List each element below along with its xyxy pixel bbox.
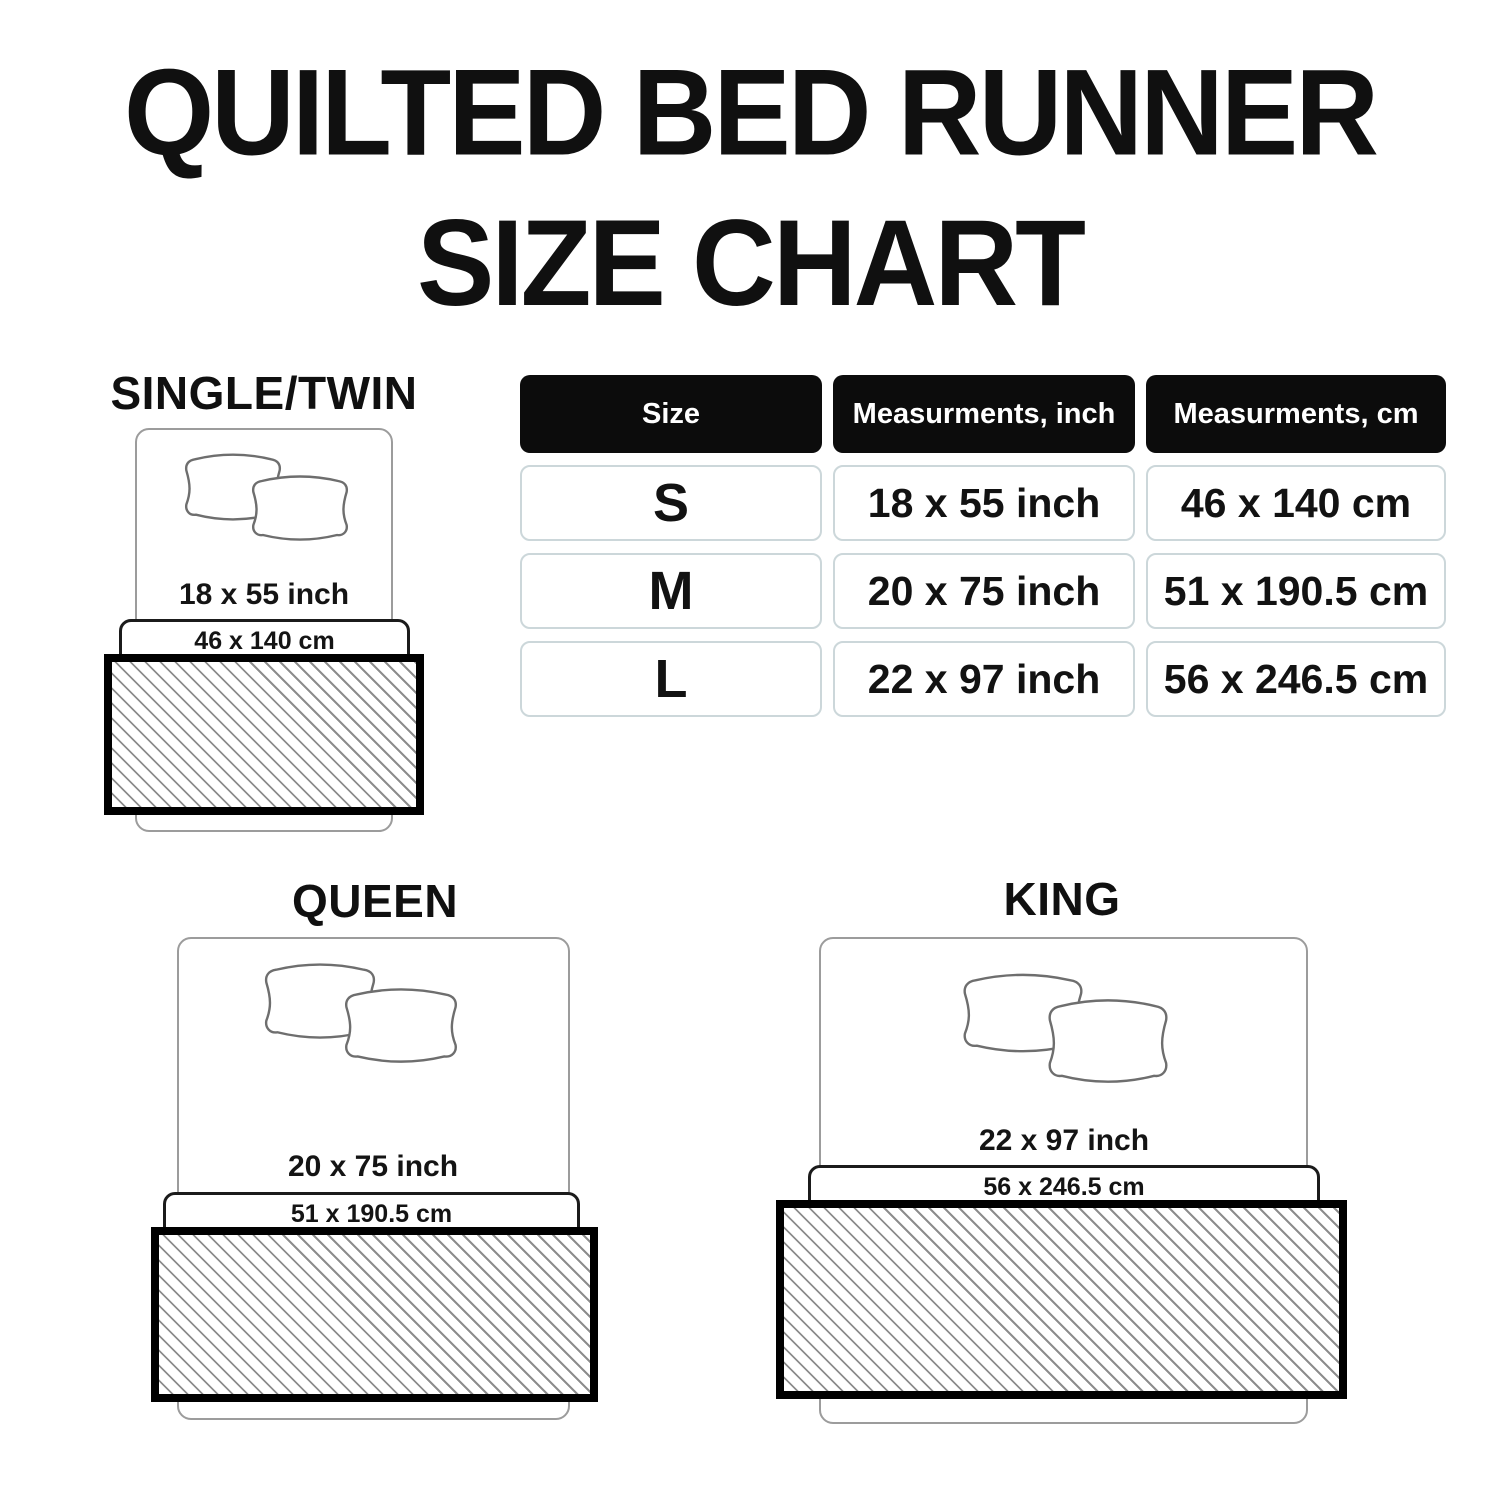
bed-label-queen: QUEEN xyxy=(175,874,575,928)
table-cell-inch-s: 18 x 55 inch xyxy=(833,465,1135,541)
pillow-icon xyxy=(339,982,463,1069)
quilted-runner-swatch xyxy=(151,1227,598,1402)
size-chart-infographic: QUILTED BED RUNNER SIZE CHART Size Measu… xyxy=(0,0,1500,1500)
table-header-inch: Measurments, inch xyxy=(833,375,1135,453)
size-table: Size Measurments, inch Measurments, cm S… xyxy=(520,375,1446,717)
bed-label-king: KING xyxy=(862,872,1262,926)
runner-size-cm-label: 46 x 140 cm xyxy=(122,622,407,656)
bed-label-single-twin: SINGLE/TWIN xyxy=(84,366,444,420)
pillow-icon xyxy=(1042,992,1174,1090)
table-header-size: Size xyxy=(520,375,822,453)
table-cell-cm-s: 46 x 140 cm xyxy=(1146,465,1446,541)
table-cell-size-l: L xyxy=(520,641,822,717)
table-cell-size-s: S xyxy=(520,465,822,541)
page-title: QUILTED BED RUNNER SIZE CHART xyxy=(0,38,1500,338)
runner-size-inch-label: 20 x 75 inch xyxy=(173,1150,573,1184)
title-line-1: QUILTED BED RUNNER xyxy=(0,38,1500,188)
table-cell-inch-m: 20 x 75 inch xyxy=(833,553,1135,629)
quilted-runner-swatch xyxy=(104,654,424,815)
pillow-icon xyxy=(247,470,353,546)
table-cell-size-m: M xyxy=(520,553,822,629)
runner-size-inch-label: 22 x 97 inch xyxy=(864,1124,1264,1158)
table-cell-cm-l: 56 x 246.5 cm xyxy=(1146,641,1446,717)
title-line-2: SIZE CHART xyxy=(0,188,1500,338)
runner-size-cm-label: 51 x 190.5 cm xyxy=(166,1195,577,1229)
runner-size-cm-label: 56 x 246.5 cm xyxy=(811,1168,1317,1202)
table-cell-inch-l: 22 x 97 inch xyxy=(833,641,1135,717)
table-cell-cm-m: 51 x 190.5 cm xyxy=(1146,553,1446,629)
quilted-runner-swatch xyxy=(776,1200,1347,1399)
runner-size-inch-label: 18 x 55 inch xyxy=(114,578,414,612)
table-header-cm: Measurments, cm xyxy=(1146,375,1446,453)
